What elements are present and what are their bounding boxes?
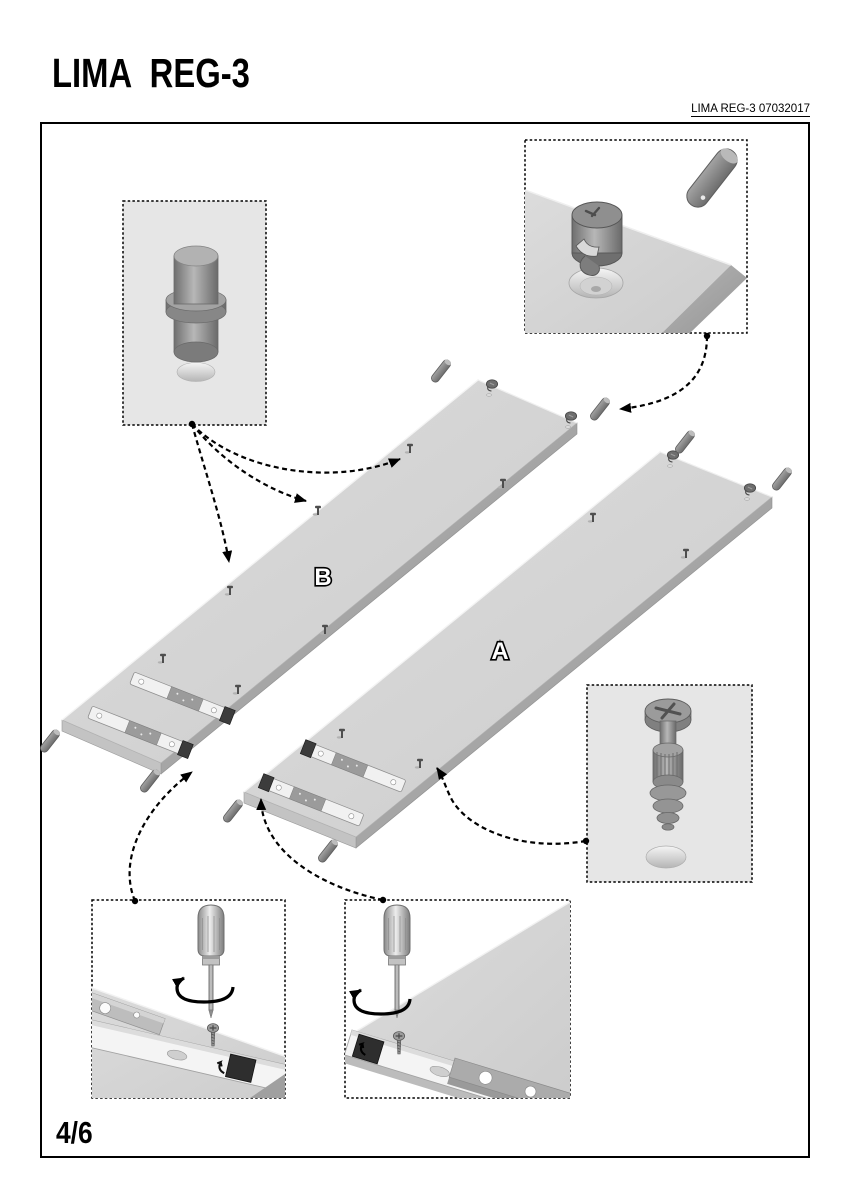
assembly-diagram: B A [0,0,848,1200]
callout-screwdriver-left [77,900,317,1110]
dowel-icon [771,466,793,492]
leader-arrow [620,336,707,409]
dowel-icon [674,429,696,455]
leader-arrow [437,768,586,844]
dowel-icon [39,728,61,754]
dowel-icon [317,838,339,864]
panel-label-a: A [491,638,508,665]
shelf-pin-icon [166,246,226,362]
dowel-icon [589,396,611,422]
pin-hole-icon [177,363,215,382]
callout-screwdriver-right [342,896,580,1131]
panel-label-b: B [314,564,331,591]
leader-arrow [130,772,192,901]
dowel-icon [430,358,452,384]
callout-cam-lock-dowel [525,140,747,333]
leader-arrow [192,424,306,501]
instruction-page: LIMA REG-3 LIMA REG-3 07032017 4/6 [0,0,848,1200]
callout-shelf-pin [123,201,266,425]
dowel-icon [139,768,161,794]
leader-arrow [192,424,400,473]
callout-euro-screw [587,685,752,882]
screw-hole-icon [646,846,686,868]
dowel-icon [222,798,244,824]
